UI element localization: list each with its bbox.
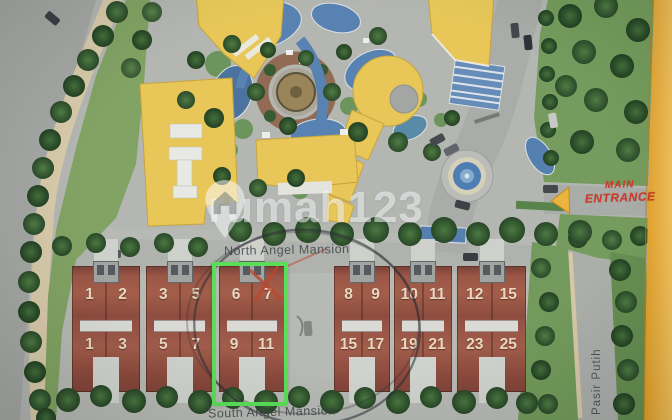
driveway (410, 357, 436, 403)
unit-number: 5 (191, 287, 200, 303)
entrance-arrow-icon (548, 185, 571, 216)
unit-number: 7 (191, 337, 200, 353)
unit-number: 17 (367, 337, 384, 353)
house-block: 1 2 1 3 (72, 266, 140, 392)
driveway (93, 357, 119, 403)
unit-number: 12 (466, 287, 483, 303)
unit-number: 8 (344, 287, 353, 303)
unit-number: 9 (371, 287, 380, 303)
carport (410, 261, 436, 283)
main-entrance-sign: MAIN ENTRANCE (548, 178, 667, 207)
south-row-label: South Angel Mansion (208, 404, 336, 420)
unit-number: 10 (401, 287, 418, 303)
carport (167, 261, 193, 283)
unit-number: 2 (118, 287, 127, 303)
unit-number: 11 (429, 287, 445, 303)
back-alley (342, 320, 382, 332)
house-block: 12 15 23 25 (457, 266, 526, 392)
unit-number: 21 (428, 337, 445, 353)
carport (349, 261, 375, 283)
unit-number: 15 (340, 337, 357, 353)
unit-number: 1 (85, 337, 94, 353)
unit-number: 3 (118, 337, 127, 353)
unit-number: 15 (500, 287, 517, 303)
unit-number: 23 (466, 337, 483, 353)
street-label: Pasir Putih (592, 285, 604, 415)
lounger-deck (449, 60, 505, 111)
building-center-slab (256, 134, 358, 188)
back-alley (465, 320, 518, 332)
house-block: 10 11 19 21 (394, 266, 452, 392)
unit-number: 25 (500, 337, 517, 353)
house-block: 8 9 15 17 (334, 266, 390, 392)
unit-number: 3 (159, 287, 168, 303)
driveway (167, 357, 193, 403)
back-alley (402, 320, 444, 332)
north-row-label: North Angel Mansion (224, 243, 350, 258)
carport (93, 261, 119, 283)
driveway (349, 357, 375, 403)
unit-number: 5 (159, 337, 168, 353)
highlight-rectangle (212, 262, 288, 406)
unit-number: 19 (400, 337, 417, 353)
back-alley (154, 320, 205, 332)
unit-number: 1 (85, 287, 94, 303)
back-alley (80, 320, 132, 332)
site-plan-photo: 1 2 1 3 3 5 5 7 6 7 9 11 (0, 0, 672, 420)
driveway (479, 357, 505, 403)
house-block: 3 5 5 7 (146, 266, 213, 392)
carport (479, 261, 505, 283)
